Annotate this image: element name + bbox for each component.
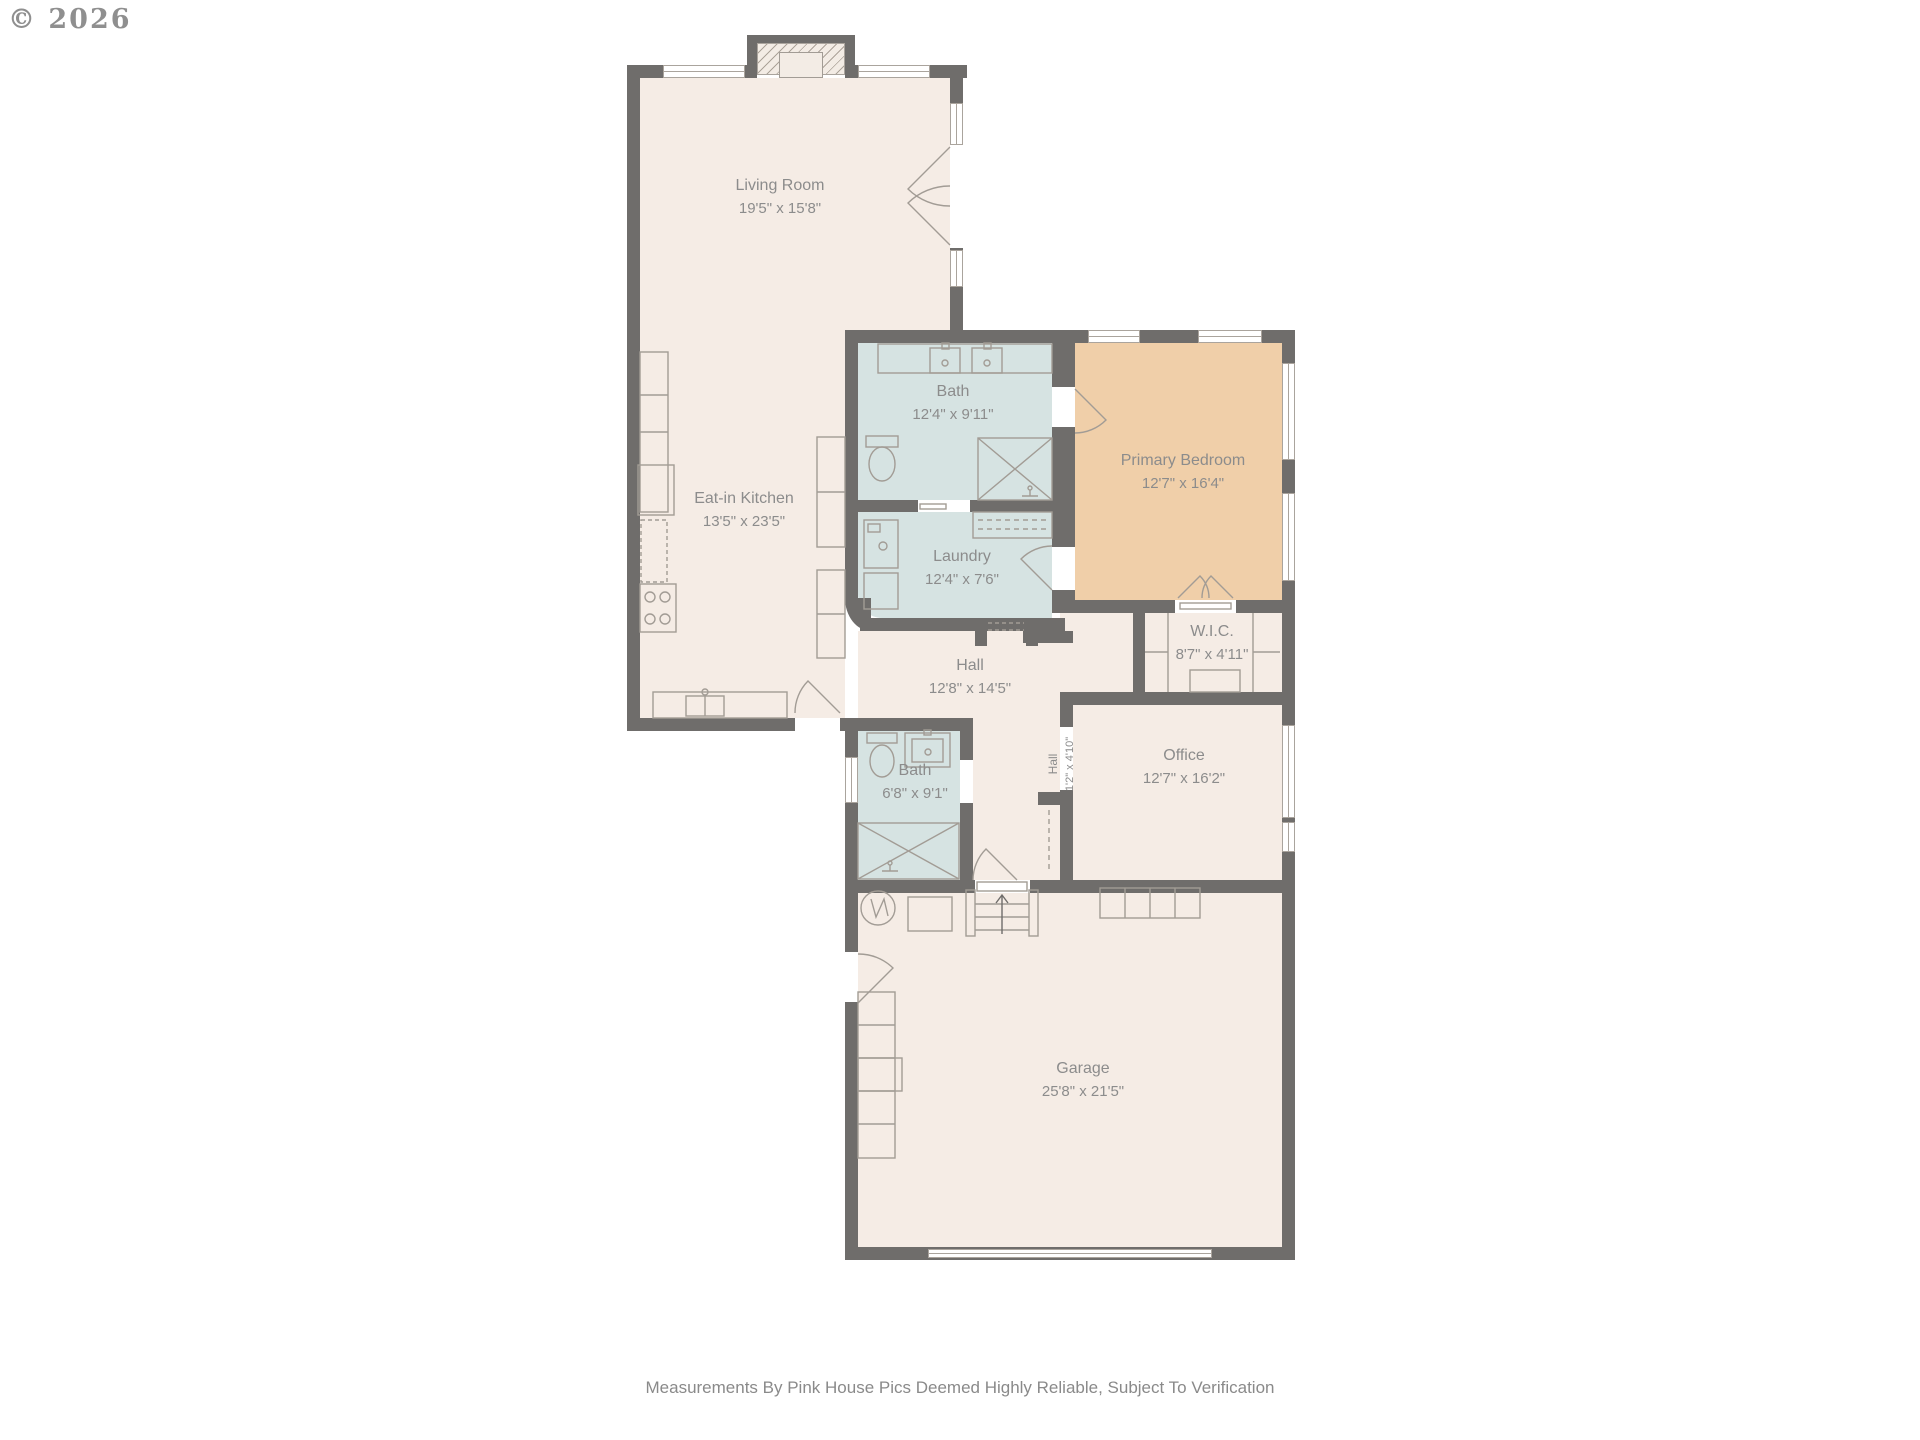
door-swing-icon xyxy=(858,954,893,1003)
door-swing-icon xyxy=(1075,389,1106,433)
room-label-office: Office12'7" x 16'2" xyxy=(1143,744,1225,791)
room-label-hall-small: Hall1'2" x 4'10" xyxy=(1044,737,1079,791)
furnace-icon xyxy=(908,897,952,931)
room-label-garage: Garage25'8" x 21'5" xyxy=(1042,1057,1124,1104)
room-label-bath2: Bath6'8" x 9'1" xyxy=(882,759,948,806)
door-swing-icon xyxy=(1021,546,1052,590)
storage-shelves xyxy=(858,992,895,1158)
room-label-kitchen: Eat-in Kitchen13'5" x 23'5" xyxy=(694,487,794,534)
water-heater-icon xyxy=(861,891,895,925)
door-swing-icon xyxy=(795,681,840,713)
kitchen-fixtures xyxy=(638,352,845,718)
room-label-laundry: Laundry12'4" x 7'6" xyxy=(925,545,999,592)
entry-steps xyxy=(966,890,1038,936)
toilet-icon xyxy=(867,733,897,743)
room-label-living-room: Living Room19'5" x 15'8" xyxy=(736,174,825,221)
fixtures-layer xyxy=(0,0,1920,1440)
floor-plan: Living Room19'5" x 15'8" Eat-in Kitchen1… xyxy=(0,0,1920,1440)
garage-fixtures xyxy=(858,882,1200,1158)
door-swings xyxy=(795,147,1233,1003)
room-label-hall: Hall12'8" x 14'5" xyxy=(929,654,1011,701)
disclaimer-text: Measurements By Pink House Pics Deemed H… xyxy=(0,1378,1920,1398)
copyright-watermark: © 2026 xyxy=(8,4,132,35)
room-label-primary-bedroom: Primary Bedroom12'7" x 16'4" xyxy=(1121,449,1245,496)
toilet-icon xyxy=(866,436,898,447)
door-swing-icon xyxy=(973,849,1017,880)
room-label-wic: W.I.C.8'7" x 4'11" xyxy=(1176,620,1249,667)
room-label-bath1: Bath12'4" x 9'11" xyxy=(912,380,993,427)
